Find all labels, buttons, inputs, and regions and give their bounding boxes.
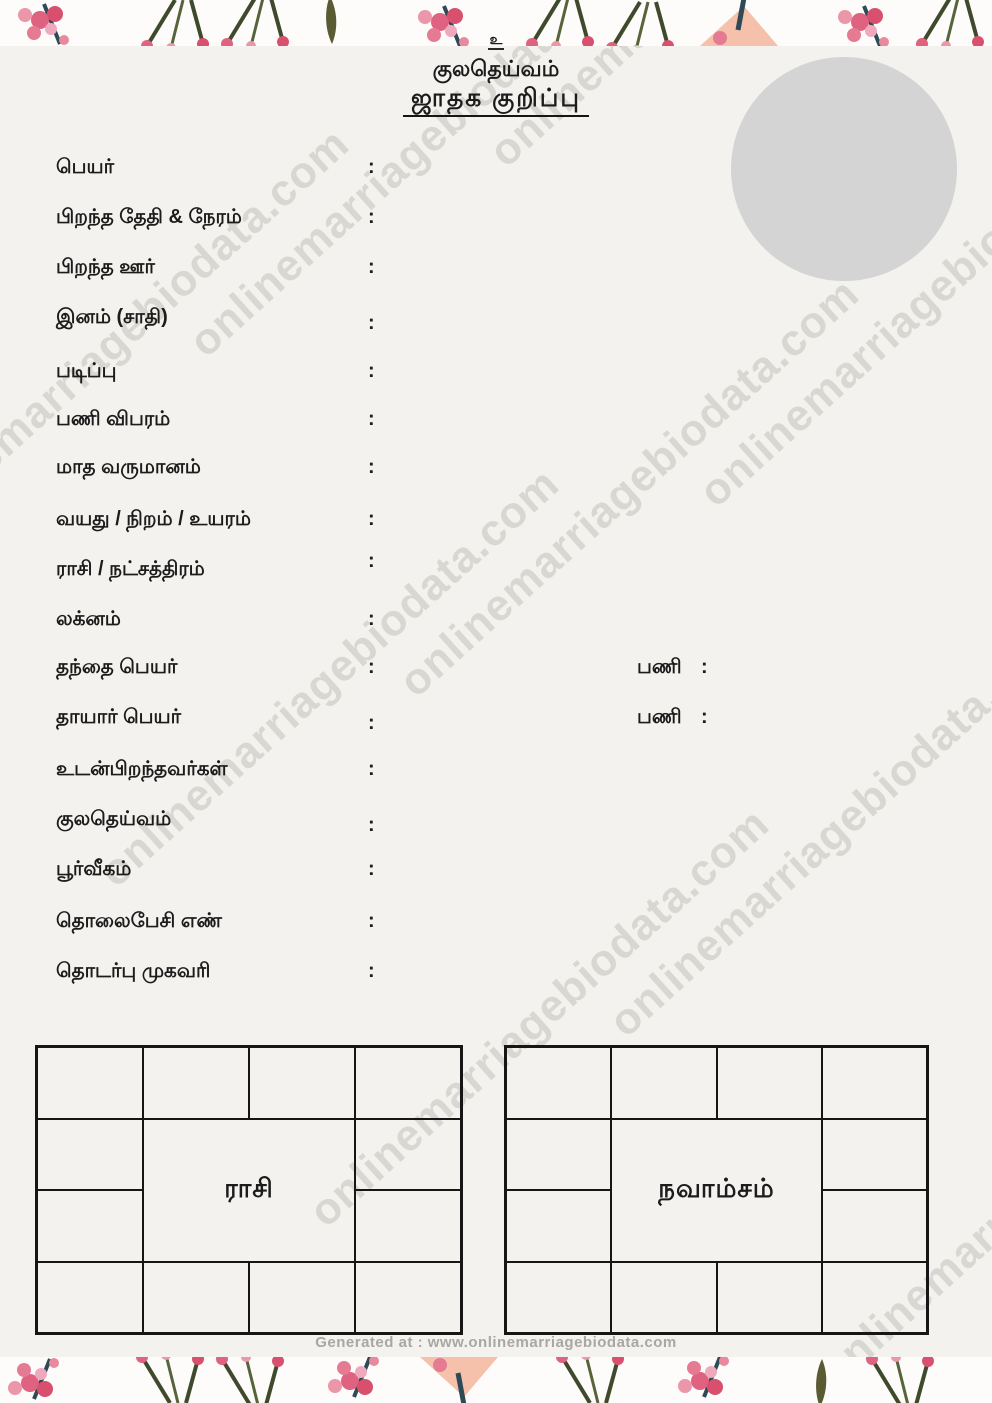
chart-cell	[249, 1047, 355, 1119]
field-separator: :	[368, 154, 375, 180]
field-row-family-deity: குலதெய்வம் :	[56, 806, 936, 834]
watermark-text: onlinemarriagebiodata.com	[390, 269, 869, 707]
field-label: லக்னம்	[56, 608, 121, 630]
field-row-monthly-income: மாத வருமானம் :	[56, 454, 936, 482]
field-label: தந்தை பெயர்	[56, 656, 177, 678]
chart-cell	[717, 1262, 822, 1334]
field-separator: :	[368, 254, 375, 280]
field-separator: :	[368, 358, 375, 384]
chart-cell	[355, 1119, 461, 1191]
chart-cell	[822, 1119, 927, 1191]
field-label: தொலைபேசி எண்	[56, 910, 222, 932]
chart-cell	[506, 1047, 611, 1119]
chart-cell	[822, 1047, 927, 1119]
floral-border-bottom-image	[0, 1357, 992, 1403]
chart-cell	[143, 1047, 249, 1119]
field-separator: :	[368, 548, 375, 574]
field-row-native-place: பூர்வீகம் :	[56, 856, 936, 884]
chart-cell	[37, 1047, 143, 1119]
field-label: உடன்பிறந்தவர்கள்	[56, 758, 228, 780]
field-label: வயது / நிறம் / உயரம்	[56, 508, 251, 530]
mother-occupation-label: பணி	[637, 704, 682, 730]
chart-cell	[37, 1190, 143, 1262]
chart-cell	[506, 1190, 611, 1262]
field-separator: :	[368, 856, 375, 882]
field-separator: :	[368, 958, 375, 984]
field-row-name: பெயர் :	[56, 154, 936, 182]
field-separator: :	[368, 606, 375, 632]
field-label: பெயர்	[56, 156, 114, 178]
field-row-lagnam: லக்னம் :	[56, 606, 936, 634]
biodata-page: onlinemarriagebiodata.com onlinemarriage…	[0, 0, 992, 1403]
field-label: பிறந்த ஊர்	[56, 256, 155, 278]
chart-cell	[355, 1262, 461, 1334]
invocation-symbol: உ	[0, 31, 992, 50]
father-occupation-separator: :	[701, 654, 708, 680]
rasi-chart: ராசி	[35, 1045, 463, 1335]
field-separator: :	[368, 908, 375, 934]
field-label: மாத வருமானம்	[56, 456, 201, 478]
field-row-birth-place: பிறந்த ஊர் :	[56, 254, 936, 282]
chart-cell	[506, 1119, 611, 1191]
field-row-caste: இனம் (சாதி) :	[56, 304, 936, 332]
navamsam-chart: நவாம்சம்	[504, 1045, 929, 1335]
field-row-contact-address: தொடர்பு முகவரி :	[56, 958, 936, 986]
field-separator: :	[368, 812, 375, 838]
chart-cell	[611, 1047, 716, 1119]
mother-occupation-separator: :	[701, 704, 708, 730]
field-row-mother-name: தாயார் பெயர் : பணி :	[56, 704, 936, 732]
chart-cell	[717, 1047, 822, 1119]
field-separator: :	[368, 506, 375, 532]
field-separator: :	[368, 756, 375, 782]
chart-cell	[249, 1262, 355, 1334]
field-label: ராசி / நட்சத்திரம்	[56, 558, 205, 580]
chart-cell	[355, 1047, 461, 1119]
field-separator: :	[368, 204, 375, 230]
generated-at-footer: Generated at : www.onlinemarriagebiodata…	[0, 1334, 992, 1351]
field-row-job-details: பணி விபரம் :	[56, 406, 936, 434]
field-label: பூர்வீகம்	[56, 858, 131, 880]
chart-cell	[822, 1262, 927, 1334]
field-row-rasi-nakshatra: ராசி / நட்சத்திரம் :	[56, 556, 936, 584]
field-separator: :	[368, 654, 375, 680]
field-label: தாயார் பெயர்	[56, 706, 181, 728]
chart-cell	[611, 1262, 716, 1334]
field-label: படிப்பு	[56, 360, 117, 382]
chart-cell	[506, 1262, 611, 1334]
field-label: பணி விபரம்	[56, 408, 170, 430]
field-separator: :	[368, 406, 375, 432]
field-separator: :	[368, 710, 375, 736]
field-row-age-color-height: வயது / நிறம் / உயரம் :	[56, 506, 936, 534]
field-row-siblings: உடன்பிறந்தவர்கள் :	[56, 756, 936, 784]
chart-cell	[355, 1190, 461, 1262]
navamsam-chart-title: நவாம்சம்	[611, 1119, 822, 1262]
field-row-birth-date-time: பிறந்த தேதி & நேரம் :	[56, 204, 936, 232]
field-label: தொடர்பு முகவரி	[56, 960, 210, 982]
watermark-text: onlinemarriagebiodata.com	[0, 119, 359, 557]
field-label: இனம் (சாதி)	[56, 306, 168, 328]
field-row-education: படிப்பு :	[56, 358, 936, 386]
chart-cell	[37, 1119, 143, 1191]
field-label: குலதெய்வம்	[56, 808, 171, 830]
chart-cell	[143, 1262, 249, 1334]
rasi-chart-title: ராசி	[143, 1119, 355, 1262]
field-row-phone-number: தொலைபேசி எண் :	[56, 908, 936, 936]
chart-cell	[37, 1262, 143, 1334]
field-label: பிறந்த தேதி & நேரம்	[56, 206, 242, 228]
field-separator: :	[368, 454, 375, 480]
father-occupation-label: பணி	[637, 654, 682, 680]
chart-cell	[822, 1190, 927, 1262]
field-row-father-name: தந்தை பெயர் : பணி :	[56, 654, 936, 682]
field-separator: :	[368, 310, 375, 336]
